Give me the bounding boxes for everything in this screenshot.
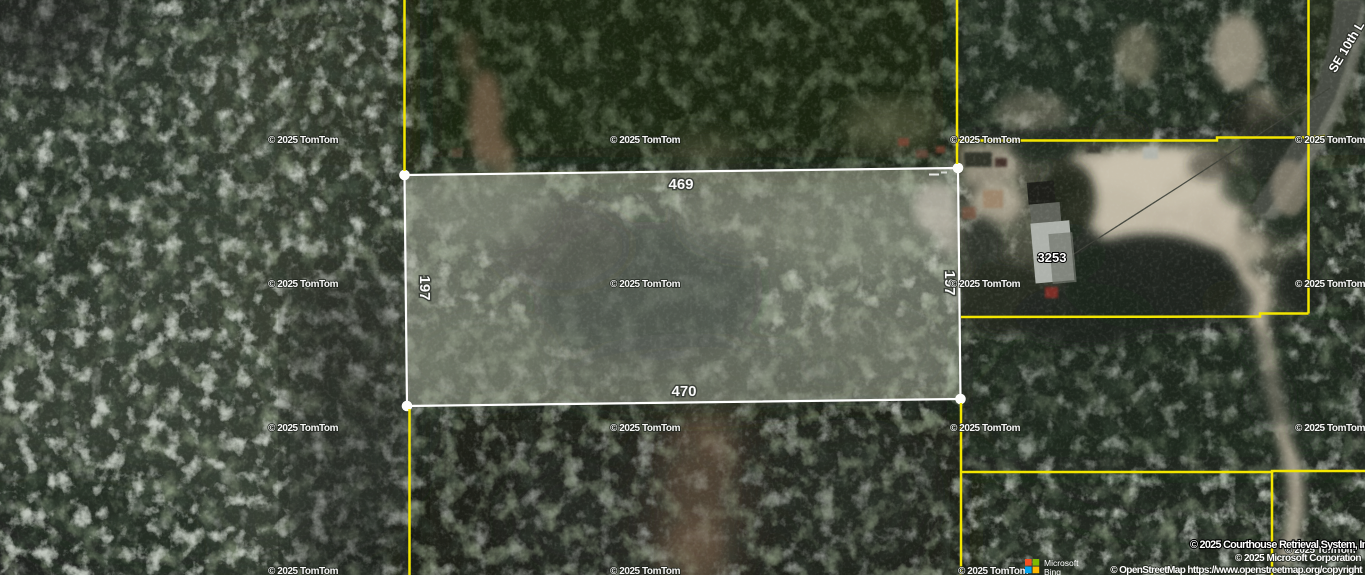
svg-text:© 2025 TomTom: © 2025 TomTom [610,423,681,434]
svg-text:© 2025 Microsoft Corporation: © 2025 Microsoft Corporation [1235,553,1362,564]
svg-text:© 2025 TomTom: © 2025 TomTom [610,279,681,290]
svg-text:© OpenStreetMap https://www.op: © OpenStreetMap https://www.openstreetma… [1110,565,1363,575]
svg-text:© 2025 TomTom: © 2025 TomTom [268,135,339,146]
svg-text:470: 470 [671,383,696,400]
svg-text:© 2025 Courthouse Retrieval Sy: © 2025 Courthouse Retrieval System, Inc [1190,539,1365,551]
svg-text:Bing: Bing [1044,567,1061,575]
svg-text:© 2025 TomTom: © 2025 TomTom [610,566,681,575]
svg-text:197: 197 [416,275,433,300]
svg-text:© 2025 TomTom: © 2025 TomTom [610,135,681,146]
svg-text:© 2025 TomTom: © 2025 TomTom [268,279,339,290]
svg-text:© 2025 TomTom: © 2025 TomTom [1295,423,1365,434]
svg-text:© 2025 TomTom: © 2025 TomTom [1295,135,1365,146]
svg-text:© 2025 TomTom: © 2025 TomTom [950,279,1021,290]
svg-text:© 2025 TomTom: © 2025 TomTom [950,135,1021,146]
svg-text:© 2025 TomTom: © 2025 TomTom [268,566,339,575]
svg-text:469: 469 [668,176,693,193]
svg-text:© 2025 TomTom: © 2025 TomTom [958,566,1029,575]
svg-text:3253: 3253 [1038,250,1067,265]
svg-text:© 2025 TomTom: © 2025 TomTom [950,423,1021,434]
svg-text:© 2025 TomTom: © 2025 TomTom [1295,279,1365,290]
svg-text:© 2025 TomTom: © 2025 TomTom [268,423,339,434]
